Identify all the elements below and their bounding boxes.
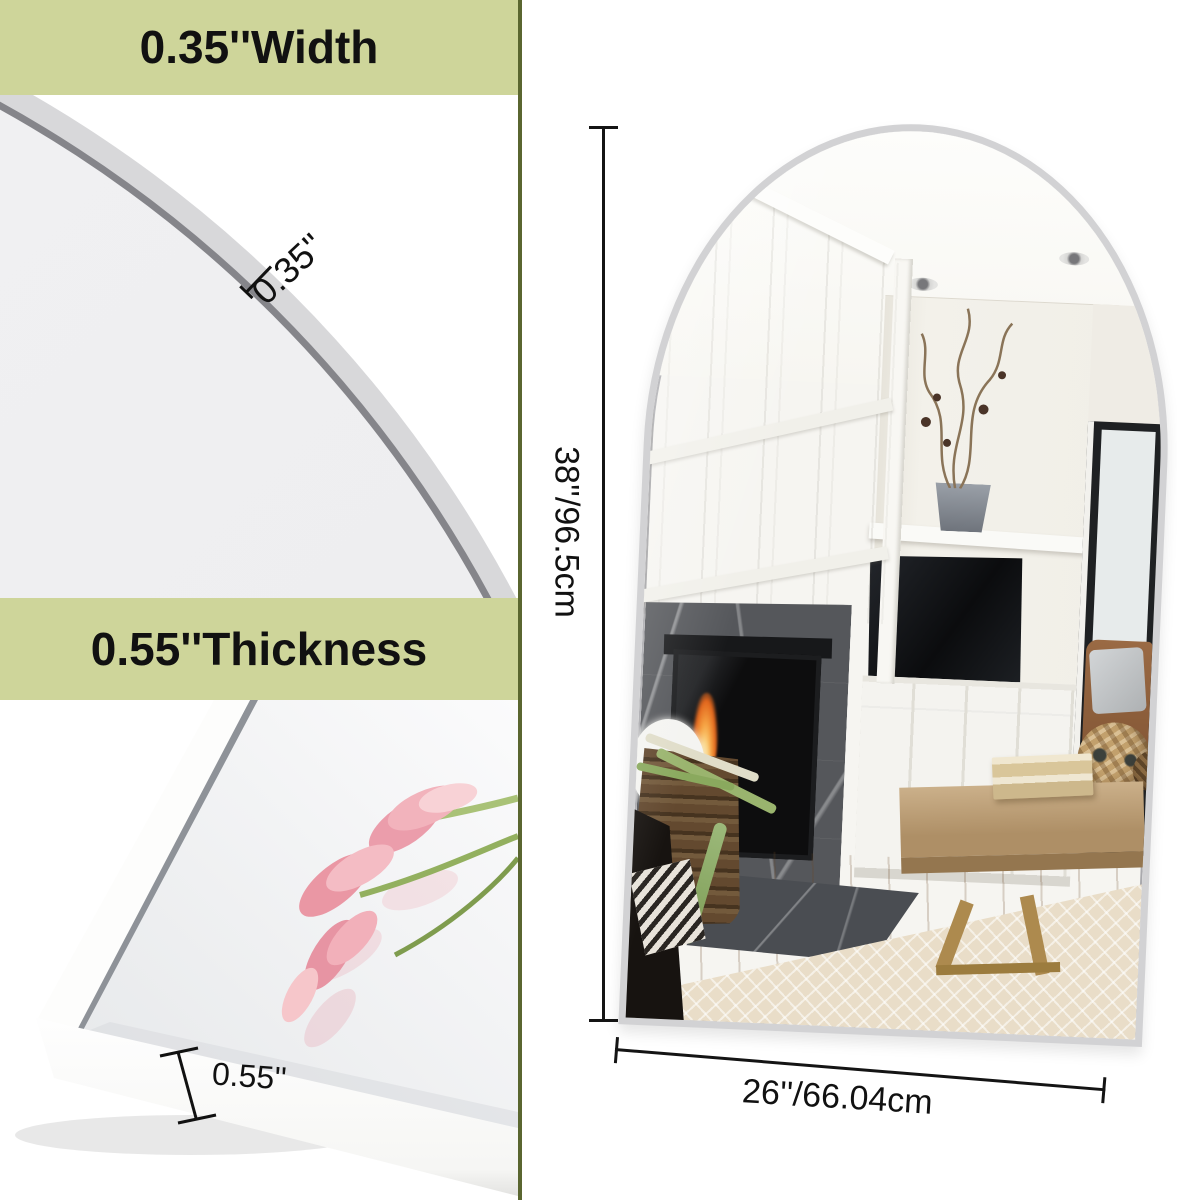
mirror-glass-surface: [0, 95, 518, 598]
width-dim-left-tick: [614, 1037, 619, 1063]
column-divider-line: [518, 0, 522, 1200]
arched-mirror-product: [618, 113, 1177, 1047]
frame-thickness-closeup-photo: 0.55'': [0, 700, 518, 1200]
mirror-glare-overlay: [626, 120, 1175, 1039]
width-dim-right-tick: [1101, 1077, 1106, 1103]
thickness-header-bar: 0.55''Thickness: [0, 598, 518, 700]
height-dim-top-cap: [589, 126, 618, 129]
width-header-bar: 0.35''Width: [0, 0, 518, 95]
product-infographic: 0.35''Width 0.35'' 0.55''Thickness: [0, 0, 1177, 1200]
mirror-corner-illustration: [0, 700, 518, 1200]
height-dim-bottom-cap: [589, 1019, 618, 1022]
thickness-header-label: 0.55''Thickness: [91, 623, 427, 675]
width-dim-label: 26''/66.04cm: [741, 1072, 934, 1123]
frame-width-closeup-photo: 0.35'': [0, 95, 518, 598]
width-header-label: 0.35''Width: [140, 21, 379, 73]
height-dim-label: 38''/96.5cm: [547, 446, 586, 618]
height-dimension-line: [602, 127, 605, 1021]
thickness-dim-label: 0.55'': [211, 1055, 288, 1097]
